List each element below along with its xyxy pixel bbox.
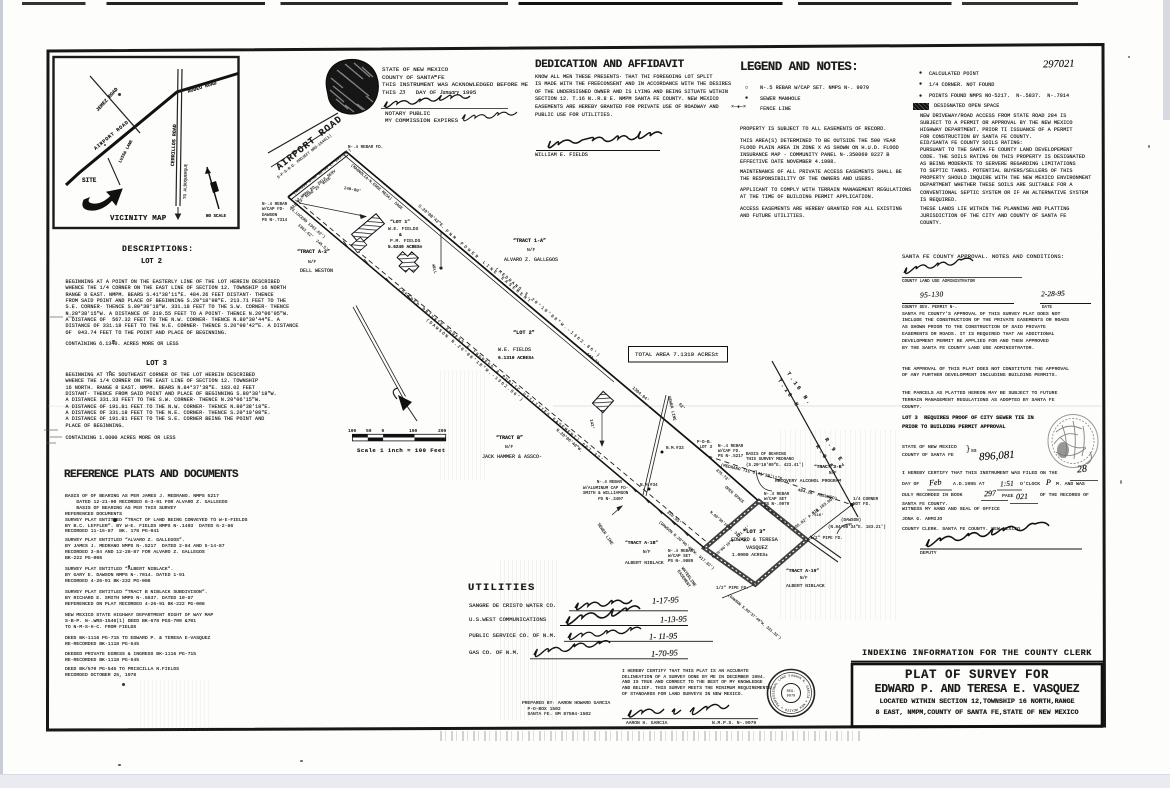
svg-text:0: 0 [382, 428, 385, 434]
svg-text:9979: 9979 [787, 695, 796, 699]
svg-text:100: 100 [348, 428, 357, 434]
svg-text:50: 50 [366, 428, 372, 434]
svg-text:100: 100 [409, 428, 418, 434]
svg-text:REG.: REG. [787, 690, 796, 694]
